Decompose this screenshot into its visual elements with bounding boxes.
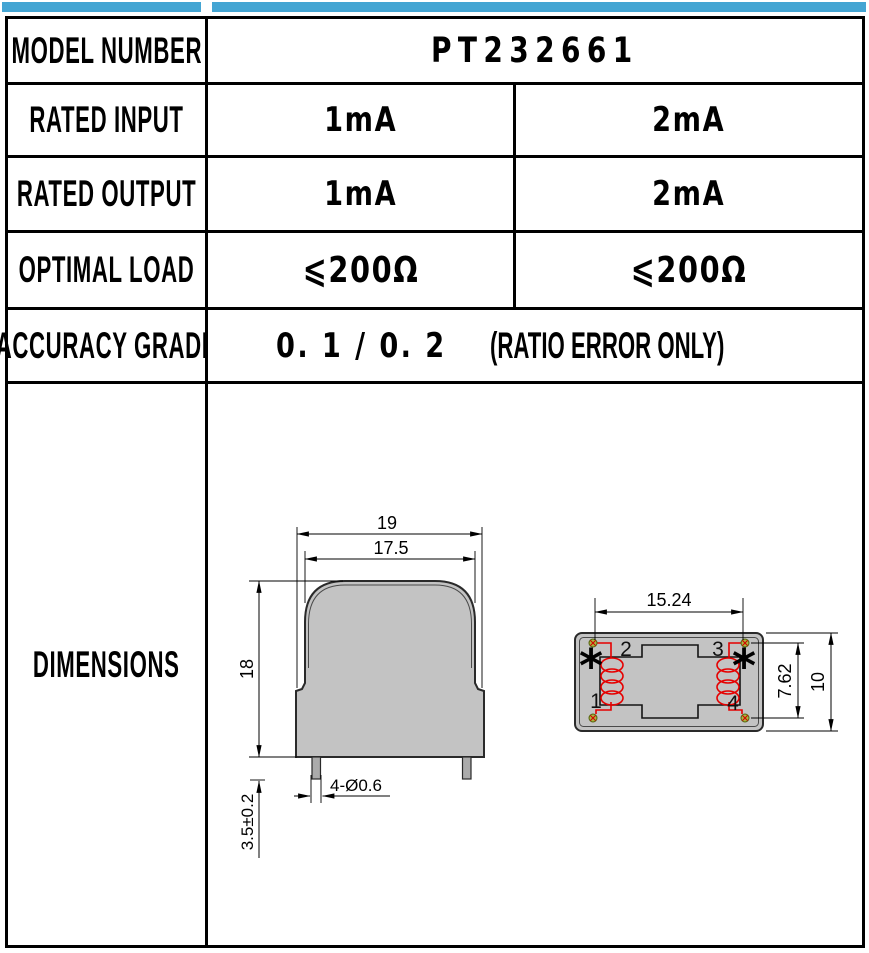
accuracy-grade-value: 0. 1 / 0. 2: [276, 326, 447, 366]
rated-input-label: RATED INPUT: [29, 99, 183, 141]
rated-output-value-2: 2mA: [652, 174, 725, 214]
row-rated-input-label-cell: RATED INPUT: [8, 85, 205, 155]
dimensions-label: DIMENSIONS: [33, 644, 180, 686]
rated-input-value-2: 2mA: [652, 100, 725, 140]
rated-output-value-1: 1mA: [324, 174, 397, 214]
optimal-load-col1-cell: ⩽200Ω: [208, 233, 513, 307]
header-accent-bar-right: [212, 2, 866, 12]
accuracy-grade-note: (RATIO ERROR ONLY): [490, 325, 724, 367]
rated-output-col2-cell: 2mA: [516, 158, 862, 230]
spec-sheet: MODEL NUMBER PT232661 RATED INPUT 1mA 2m…: [0, 0, 869, 953]
rated-input-col1-cell: 1mA: [208, 85, 513, 155]
rated-input-value-1: 1mA: [324, 100, 397, 140]
spec-table: MODEL NUMBER PT232661 RATED INPUT 1mA 2m…: [5, 16, 865, 948]
rated-input-col2-cell: 2mA: [516, 85, 862, 155]
rated-output-col1-cell: 1mA: [208, 158, 513, 230]
row-model-value-cell: PT232661: [208, 19, 862, 82]
optimal-load-value-2: ⩽200Ω: [631, 250, 748, 291]
row-accuracy-label-cell: ACCURACY GRADE: [8, 310, 205, 381]
rated-output-label: RATED OUTPUT: [17, 173, 196, 215]
model-number-label: MODEL NUMBER: [11, 30, 202, 72]
header-accent-bar-left: [2, 2, 201, 12]
optimal-load-label: OPTIMAL LOAD: [19, 249, 195, 291]
optimal-load-value-1: ⩽200Ω: [302, 250, 419, 291]
row-model-label-cell: MODEL NUMBER: [8, 19, 205, 82]
row-optimal-load-label-cell: OPTIMAL LOAD: [8, 233, 205, 307]
optimal-load-col2-cell: ⩽200Ω: [516, 233, 862, 307]
row-rated-output-label-cell: RATED OUTPUT: [8, 158, 205, 230]
row-dimensions-label-cell: DIMENSIONS: [8, 384, 205, 945]
model-number-value: PT232661: [431, 31, 639, 71]
dimensions-drawing-cell: [208, 384, 862, 945]
accuracy-grade-label: ACCURACY GRADE: [0, 325, 217, 367]
row-accuracy-value-cell: 0. 1 / 0. 2 (RATIO ERROR ONLY): [208, 310, 862, 381]
